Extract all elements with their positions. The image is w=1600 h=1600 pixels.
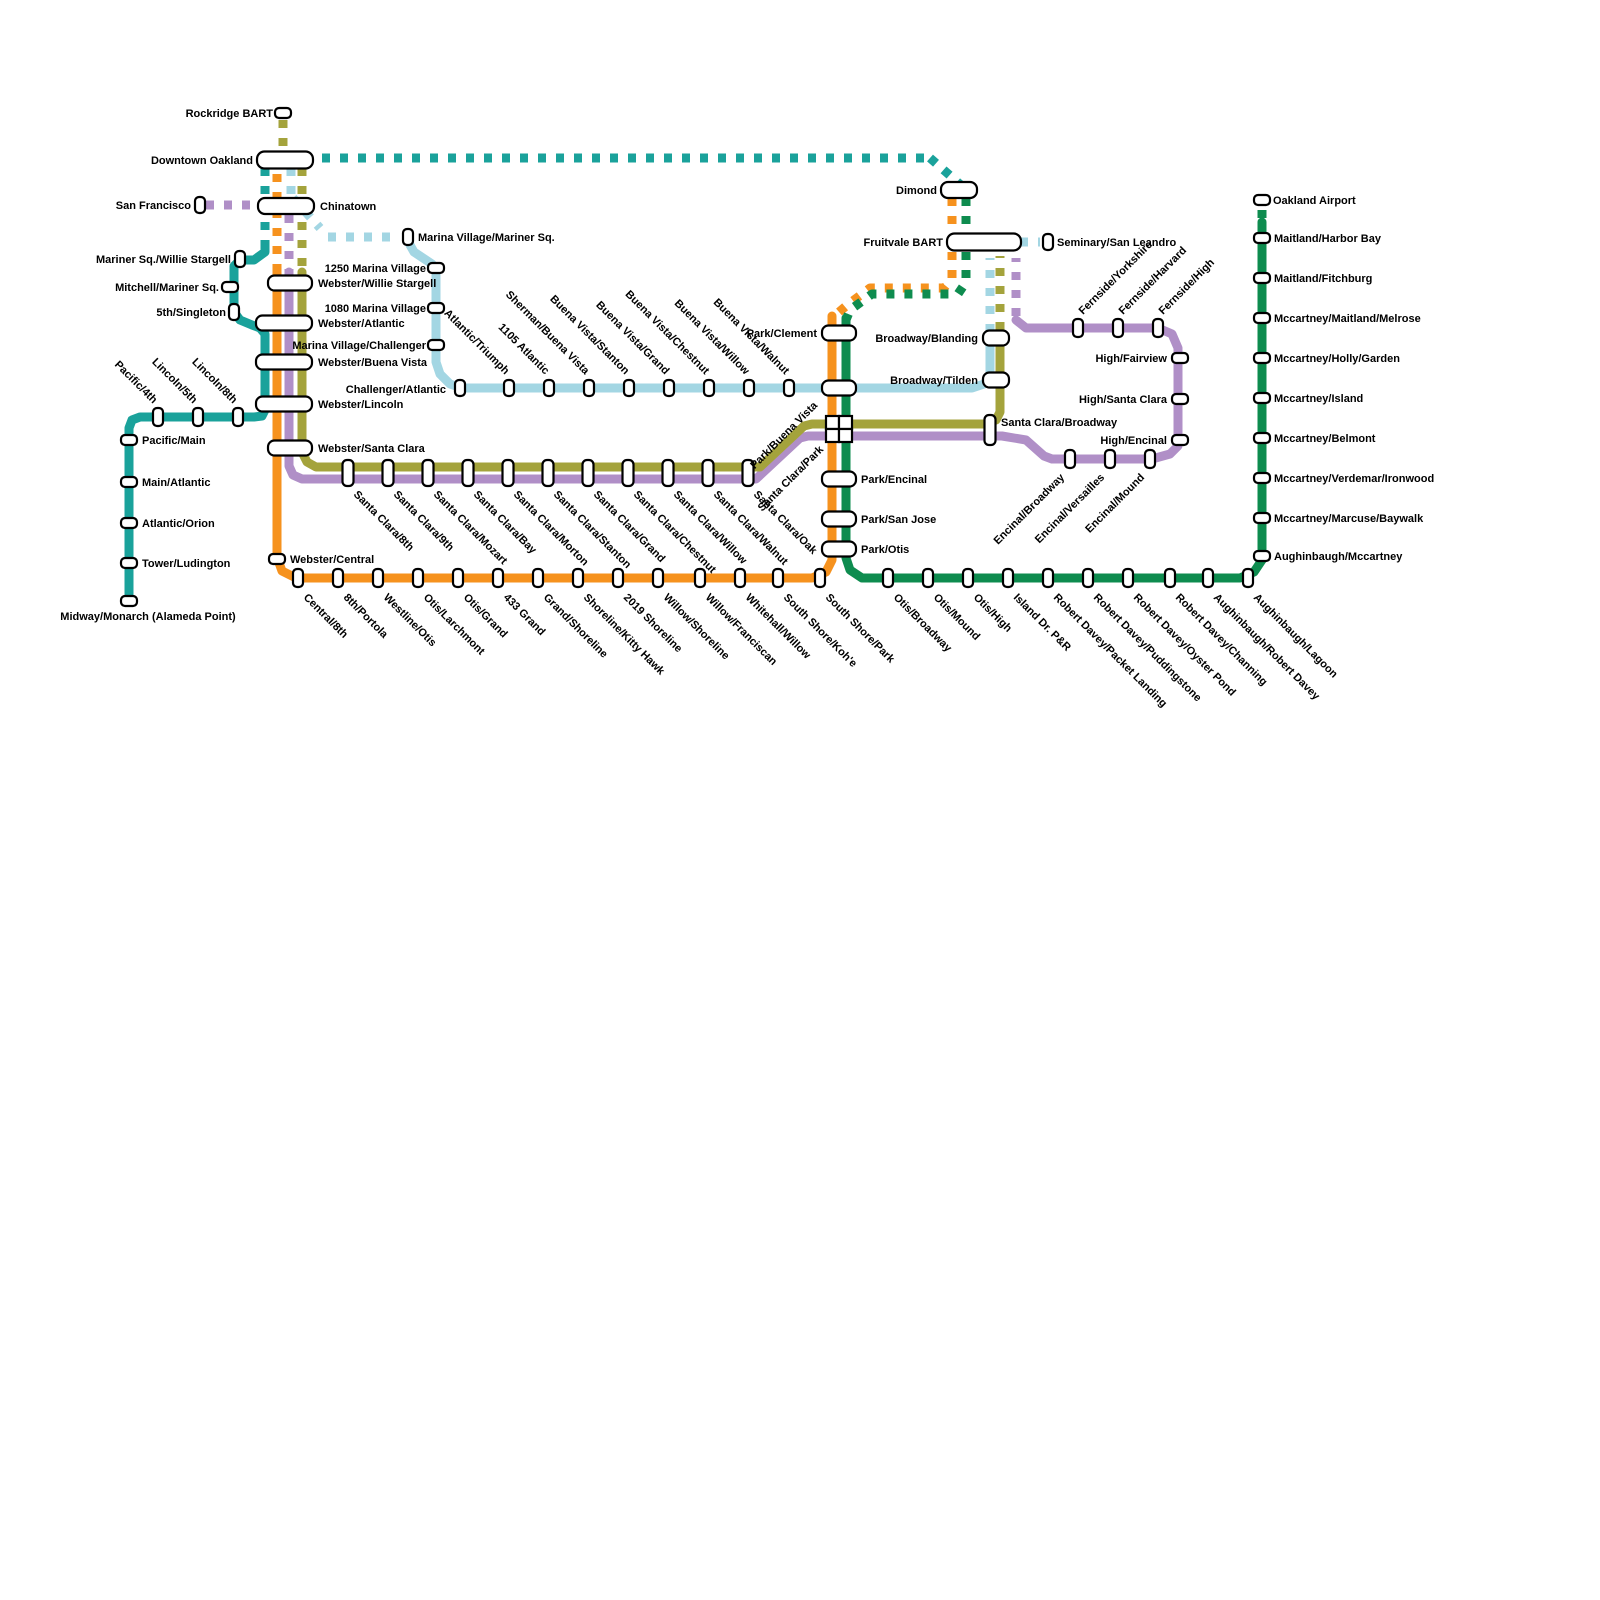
station-label: Chinatown — [320, 201, 376, 213]
station-label: San Francisco — [116, 200, 191, 212]
station-marina-village-mariner-sq: Marina Village/Mariner Sq. — [403, 229, 555, 245]
station-label: Mariner Sq./Willie Stargell — [96, 254, 231, 266]
station-marker — [613, 569, 623, 587]
station-label: Park/Encinal — [861, 474, 927, 486]
station-marker — [664, 380, 674, 396]
station-label: Dimond — [896, 185, 937, 197]
station-label: Broadway/Blanding — [875, 333, 978, 345]
station-marker — [343, 460, 354, 486]
station-label: Maitland/Fitchburg — [1274, 273, 1372, 285]
station-marker — [703, 460, 714, 486]
station-marker — [1254, 195, 1270, 205]
station-marker — [1254, 273, 1270, 283]
station-marker — [333, 569, 343, 587]
station-label: Tower/Ludington — [142, 558, 231, 570]
station-atlantic-orion: Atlantic/Orion — [121, 518, 215, 530]
station-downtown-oakland: Downtown Oakland — [151, 152, 313, 169]
interchange-marker — [839, 429, 852, 442]
transit-map-svg: Rockridge BARTDowntown OaklandChinatownS… — [0, 0, 1600, 1600]
station-park-san-jose: Park/San Jose — [822, 512, 936, 527]
station-marker — [463, 460, 474, 486]
station-marker — [1254, 473, 1270, 483]
station-marker — [822, 542, 856, 557]
station-webster-atlantic: Webster/Atlantic — [256, 316, 405, 331]
station-label: Park/Otis — [861, 544, 909, 556]
station-label: Park/Clement — [747, 328, 818, 340]
station-marker — [193, 408, 203, 426]
station-marker — [653, 569, 663, 587]
station-marker — [121, 558, 137, 568]
station-marker — [293, 569, 303, 587]
station-label: Webster/Atlantic — [318, 318, 405, 330]
interchange-marker — [839, 416, 852, 429]
station-marker — [423, 460, 434, 486]
station-marker — [121, 435, 137, 445]
station-marker — [1254, 513, 1270, 523]
station-label: Midway/Monarch (Alameda Point) — [60, 611, 236, 623]
station-marker — [428, 263, 444, 273]
station-webster-willie-stargell: Webster/Willie Stargell — [268, 276, 436, 291]
station-marker — [1065, 450, 1075, 468]
station-marker — [815, 569, 825, 587]
station-marker — [233, 408, 243, 426]
station-label: 5th/Singleton — [156, 307, 226, 319]
station-webster-santa-clara: Webster/Santa Clara — [268, 441, 426, 456]
station-marker — [195, 197, 205, 213]
station-label: Challenger/Atlantic — [346, 384, 446, 396]
station-marker — [822, 381, 856, 396]
station-marker — [121, 518, 137, 528]
station-marker — [543, 460, 554, 486]
station-marker — [624, 380, 634, 396]
station-marker — [941, 182, 977, 198]
station-marker — [275, 108, 291, 118]
station-marker — [121, 596, 137, 606]
station-marker — [493, 569, 503, 587]
station-marker — [983, 331, 1009, 346]
station-label: 1080 Marina Village — [325, 303, 426, 315]
station-marina-village-challenger: Marina Village/Challenger — [292, 340, 444, 352]
station-label: Mccartney/Island — [1274, 393, 1363, 405]
station-marker — [1165, 569, 1175, 587]
station-marker — [923, 569, 933, 587]
station-label: Fruitvale BART — [864, 237, 944, 249]
station-marker — [455, 380, 465, 396]
station-marker — [584, 380, 594, 396]
station-label: High/Fairview — [1095, 353, 1167, 365]
station-pacific-main: Pacific/Main — [121, 435, 206, 447]
station-marker — [822, 512, 856, 527]
station-marker — [1254, 433, 1270, 443]
station-mariner-sq-willie-stargell: Mariner Sq./Willie Stargell — [96, 251, 245, 267]
station-aughinbaugh-mccartney: Aughinbaugh/Mccartney — [1254, 551, 1403, 563]
station-marker — [1203, 569, 1213, 587]
station-marker — [735, 569, 745, 587]
station-maitland-harbor-bay: Maitland/Harbor Bay — [1254, 233, 1382, 245]
station-marker — [985, 415, 996, 445]
station-marker — [235, 251, 245, 267]
station-label: Mccartney/Maitland/Melrose — [1274, 313, 1421, 325]
station-park-encinal: Park/Encinal — [822, 472, 927, 487]
station-marker — [1254, 233, 1270, 243]
station-marker — [784, 380, 794, 396]
station-marker — [663, 460, 674, 486]
station-label: Pacific/Main — [142, 435, 206, 447]
station-marker — [256, 355, 312, 370]
station-label: Oakland Airport — [1273, 195, 1356, 207]
station-marker — [1003, 569, 1013, 587]
station-label: Webster/Santa Clara — [318, 443, 426, 455]
station-park-otis: Park/Otis — [822, 542, 909, 557]
station-mccartney-verdemar-ironwood: Mccartney/Verdemar/Ironwood — [1254, 473, 1434, 485]
station-marker — [256, 316, 312, 331]
station-label: High/Encinal — [1100, 435, 1167, 447]
station-marker — [695, 569, 705, 587]
station-marker — [1254, 393, 1270, 403]
station-marker — [503, 460, 514, 486]
station-marker — [963, 569, 973, 587]
station-marker — [544, 380, 554, 396]
station-marker — [256, 397, 312, 412]
interchange-marker — [826, 416, 839, 429]
station-marker — [1172, 435, 1188, 445]
station-marker — [222, 282, 238, 292]
station-label: Downtown Oakland — [151, 155, 253, 167]
station-label: Mccartney/Belmont — [1274, 433, 1376, 445]
station-marker — [504, 380, 514, 396]
station-label: Atlantic/Orion — [142, 518, 215, 530]
station-label: High/Santa Clara — [1079, 394, 1168, 406]
station-marker — [1073, 319, 1083, 337]
station-label: Maitland/Harbor Bay — [1274, 233, 1382, 245]
station-label: Webster/Willie Stargell — [318, 278, 436, 290]
station-marker — [1243, 569, 1253, 587]
station-label: Mccartney/Holly/Garden — [1274, 353, 1400, 365]
station-mccartney-marcuse-baywalk: Mccartney/Marcuse/Baywalk — [1254, 513, 1424, 525]
station-marker — [268, 276, 312, 291]
station-label: Mitchell/Mariner Sq. — [115, 282, 219, 294]
station-marker — [428, 303, 444, 313]
station-marker — [383, 460, 394, 486]
station-label: Marina Village/Mariner Sq. — [418, 232, 555, 244]
station-label: 1250 Marina Village — [325, 263, 426, 275]
station-marker — [947, 234, 1021, 251]
station-marker — [983, 373, 1009, 388]
station-seminary-san-leandro: Seminary/San Leandro — [1043, 234, 1176, 250]
station-marker — [1123, 569, 1133, 587]
station-label: Seminary/San Leandro — [1057, 237, 1176, 249]
station-marker — [1172, 394, 1188, 404]
station-marker — [883, 569, 893, 587]
station-fruitvale-bart: Fruitvale BART — [864, 234, 1021, 251]
station-marker — [1105, 450, 1115, 468]
station-marker — [822, 472, 856, 487]
station-high-fairview: High/Fairview — [1095, 353, 1188, 365]
station-marker — [453, 569, 463, 587]
station-marker — [428, 340, 444, 350]
station-dimond: Dimond — [896, 182, 977, 198]
station-park-clement: Park/Clement — [747, 326, 856, 341]
station-label: Mccartney/Marcuse/Baywalk — [1274, 513, 1424, 525]
station-marker — [257, 152, 313, 169]
station-marker — [704, 380, 714, 396]
station-webster-buena-vista: Webster/Buena Vista — [256, 355, 428, 370]
station-marker — [623, 460, 634, 486]
station-label: Rockridge BART — [186, 108, 274, 120]
station-marker — [1145, 450, 1155, 468]
station-marker — [1254, 551, 1270, 561]
station-marker — [1172, 353, 1188, 363]
station-marker — [1083, 569, 1093, 587]
station-marker — [1043, 234, 1053, 250]
station-label: Main/Atlantic — [142, 477, 210, 489]
station-high-encinal: High/Encinal — [1100, 435, 1188, 447]
map-canvas: Rockridge BARTDowntown OaklandChinatownS… — [0, 0, 1600, 1600]
station-marker — [153, 408, 163, 426]
station-mccartney-holly-garden: Mccartney/Holly/Garden — [1254, 353, 1400, 365]
station-webster-lincoln: Webster/Lincoln — [256, 397, 404, 412]
station-label: Park/San Jose — [861, 514, 936, 526]
station-broadway-tilden: Broadway/Tilden — [890, 373, 1009, 388]
station-marker — [121, 477, 137, 487]
station-marker — [413, 569, 423, 587]
station-marker — [373, 569, 383, 587]
station-marker — [258, 198, 314, 214]
station-marker — [744, 380, 754, 396]
station-marker — [773, 569, 783, 587]
station-label: Broadway/Tilden — [890, 375, 978, 387]
station-marker — [1254, 353, 1270, 363]
station-label: Webster/Central — [290, 554, 374, 566]
station-broadway-blanding: Broadway/Blanding — [875, 331, 1009, 346]
station-marker — [1254, 313, 1270, 323]
interchange-marker — [826, 429, 839, 442]
station-label: Santa Clara/Broadway — [1001, 417, 1118, 429]
station-marker — [822, 326, 856, 341]
station-marker — [1113, 319, 1123, 337]
station-marker — [1043, 569, 1053, 587]
station-marker — [583, 460, 594, 486]
station-label: Mccartney/Verdemar/Ironwood — [1274, 473, 1434, 485]
station-mccartney-maitland-melrose: Mccartney/Maitland/Melrose — [1254, 313, 1421, 325]
station-label: Webster/Buena Vista — [318, 357, 428, 369]
station-marker — [573, 569, 583, 587]
station-marker — [269, 554, 285, 564]
station-marker — [268, 441, 312, 456]
station-marker — [229, 304, 239, 320]
station-label: Marina Village/Challenger — [292, 340, 426, 352]
station-label: Aughinbaugh/Mccartney — [1274, 551, 1403, 563]
station-main-atlantic: Main/Atlantic — [121, 477, 210, 489]
station-marker — [1153, 319, 1163, 337]
station-marker — [533, 569, 543, 587]
station-marker — [403, 229, 413, 245]
station-label: Webster/Lincoln — [318, 399, 404, 411]
